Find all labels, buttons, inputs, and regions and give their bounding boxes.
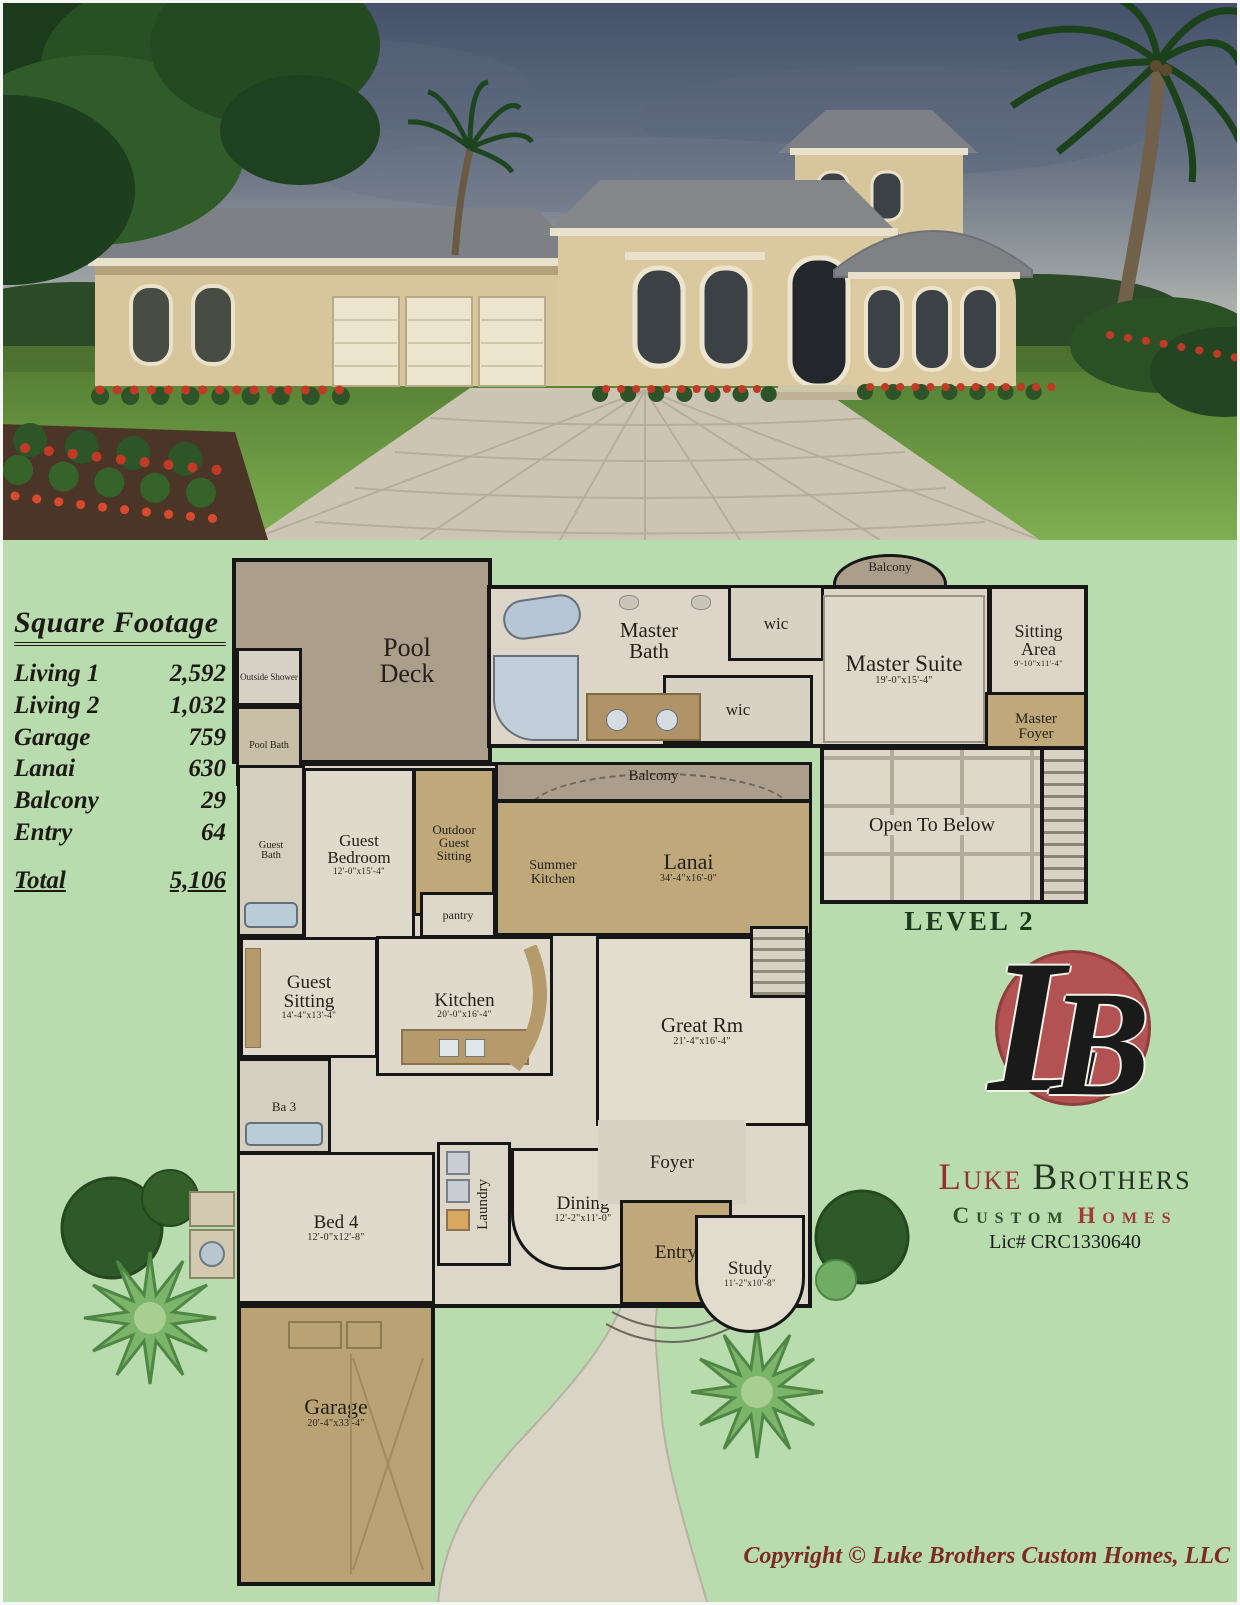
room-bed-4: Bed 4 12'-0"x12'-8" xyxy=(237,1152,435,1304)
bathtub-icon xyxy=(245,1122,323,1146)
main-roof xyxy=(545,180,900,235)
subtitle-homes: Homes xyxy=(1077,1203,1177,1228)
copyright-notice: Copyright © Luke Brothers Custom Homes, … xyxy=(690,1543,1230,1570)
entry-steps xyxy=(778,385,860,393)
room-foyer: Foyer xyxy=(598,1120,746,1204)
plan-driveway xyxy=(438,1304,708,1605)
license-number: Lic# CRC1330640 xyxy=(900,1231,1230,1254)
bathtub-icon xyxy=(244,902,298,928)
shower-icon xyxy=(493,655,579,741)
room-ba-3: Ba 3 xyxy=(237,1058,331,1154)
arched-window xyxy=(702,268,750,366)
exterior-scene xyxy=(0,0,1240,540)
room-master-suite: Master Suite 19'-0"x15'-4" xyxy=(823,595,985,743)
toilet-icon xyxy=(691,595,711,610)
room-guest-bath: Guest Bath xyxy=(237,765,305,937)
brand-name-luke: Luke xyxy=(938,1157,1022,1198)
sqft-row: Balcony29 xyxy=(14,785,226,817)
room-summer-kitchen: Summer Kitchen xyxy=(510,843,596,903)
flyer-page: Square Footage Living 12,592 Living 21,0… xyxy=(0,0,1240,1605)
stairs-level2 xyxy=(1044,746,1088,904)
foreground-garden-left xyxy=(0,424,268,540)
room-open-to-below: Open To Below xyxy=(820,746,1044,904)
subtitle-custom: Custom xyxy=(952,1203,1069,1228)
room-wic-1: wic xyxy=(728,585,824,661)
sqft-row: Entry64 xyxy=(14,817,226,849)
room-guest-sitting: Guest Sitting 14'-4"x13'-4" xyxy=(240,937,378,1058)
square-footage-title: Square Footage xyxy=(14,606,226,646)
utility-sink-icon xyxy=(446,1209,470,1231)
wall-divider xyxy=(987,585,992,707)
room-guest-bedroom: Guest Bedroom 12'-0"x15'-4" xyxy=(303,768,415,940)
sqft-row: Garage759 xyxy=(14,722,226,754)
cabinet-icon xyxy=(245,948,261,1048)
plan-palm-center xyxy=(691,1326,823,1458)
room-balcony-overhang: Balcony xyxy=(495,762,812,802)
washer-icon xyxy=(446,1151,470,1175)
room-study: Study 11'-2"x10'-8" xyxy=(695,1215,805,1333)
rotunda-window xyxy=(914,288,950,370)
brand-name: LukeBrothers xyxy=(900,1156,1230,1199)
toilet-icon xyxy=(619,595,639,610)
room-sitting-area: Sitting Area 9'-10"x11'-4" xyxy=(993,589,1084,701)
floor-plan-area: Square Footage Living 12,592 Living 21,0… xyxy=(0,540,1240,1605)
dryer-icon xyxy=(446,1179,470,1203)
brand-name-brothers: Brothers xyxy=(1032,1157,1191,1198)
lb-monogram-logo: L B xyxy=(900,940,1230,1150)
room-outside-shower: Outside Shower xyxy=(236,648,302,706)
counter-curve-icon xyxy=(488,945,548,1073)
room-pantry: pantry xyxy=(420,892,496,938)
sqft-row: Living 21,032 xyxy=(14,690,226,722)
monogram-letter-b: B xyxy=(1050,958,1150,1130)
garage-door-swing-icon xyxy=(241,1308,431,1582)
luke-brothers-logo: L B LukeBrothers CustomHomes Lic# CRC133… xyxy=(900,940,1230,1254)
double-vanity-icon xyxy=(586,693,701,741)
garage-doors xyxy=(333,297,545,386)
room-lanai: Summer Kitchen Lanai 34'-4"x16'-0" xyxy=(495,800,812,936)
stairs-level1 xyxy=(750,926,808,998)
plan-tree-dark-right xyxy=(816,1191,908,1300)
cornice-band xyxy=(88,258,566,266)
room-master-bath: Master Bath xyxy=(583,611,715,671)
bathtub-icon xyxy=(501,592,584,642)
rotunda-window xyxy=(866,288,902,370)
sqft-row: Living 12,592 xyxy=(14,658,226,690)
sqft-total-row: Total5,106 xyxy=(14,865,226,897)
brand-subtitle: CustomHomes xyxy=(900,1203,1230,1229)
garden-pads xyxy=(190,1192,234,1278)
sqft-row: Lanai630 xyxy=(14,753,226,785)
room-kitchen: Kitchen 20'-0"x16'-4" xyxy=(376,936,553,1076)
plan-tree-dark-left xyxy=(62,1170,198,1278)
room-laundry: Laundry xyxy=(437,1142,511,1266)
room-garage: Garage 20'-4"x33'-4" xyxy=(237,1304,435,1586)
arched-window xyxy=(635,268,683,366)
home-exterior-rendering xyxy=(0,0,1240,540)
square-footage-table: Square Footage Living 12,592 Living 21,0… xyxy=(14,606,226,896)
rotunda-window xyxy=(962,288,998,370)
